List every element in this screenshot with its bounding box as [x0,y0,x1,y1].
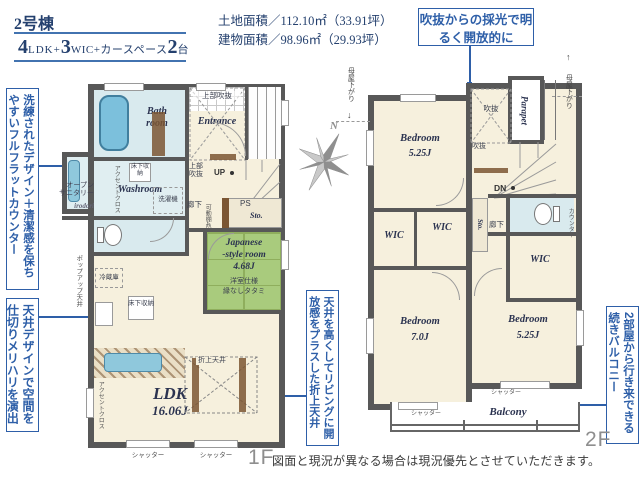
f1-popup-ceiling-label: ポップアップ天井 [74,240,82,322]
f2-wall [510,298,578,302]
f2-wall [372,266,468,270]
window [126,440,170,448]
f2-moya-dash-left [336,121,370,122]
toilet-tank-icon [553,206,560,222]
callout-continuous-balcony: 2部屋から行き来できる続きバルコニー [606,306,639,444]
f2-wall [506,198,510,302]
arrow-up-icon: ↑ [566,52,571,63]
open-sanitary-line2: サニタリー [59,190,94,197]
spec-text-ldk: LDK+ [28,44,61,56]
f1-coffered-beam [192,358,199,412]
f1-wall [88,252,188,256]
title-rule-top [14,32,186,34]
f1-accent-cloth-label-ldk: アクセントクロス [96,376,103,434]
f2-balcony-rail-inner [392,424,578,426]
window [104,83,144,91]
disclaimer-text: 図面と現況が異なる場合は現況優先とさせていただきます。 [272,452,600,469]
f1-japanese-note2: 縁なしタタミ [207,288,281,296]
f2-stair-rail [474,168,508,173]
f1-coffered-label: 折上天井 [196,357,228,365]
f2-parapet-label: Parapet [519,82,529,138]
callout-skylight: 吹抜からの採光で明るく開放的に [418,8,534,46]
spec-num-car: 2 [168,36,178,58]
window [400,94,436,102]
window [196,83,226,91]
window [366,318,374,354]
spec-line: 4LDK+3WIC+カースペース2台 [18,36,189,59]
window [366,130,374,166]
f2-dn-label: DN [494,183,506,193]
spec-text-wic: WIC+カースペース [71,44,168,56]
f1-upper-void-label-entrance: 上部吹抜 [193,91,241,100]
f2-wic-mid-label: WIC [420,222,464,234]
f2-parapet-rail [544,80,556,140]
f1-sto-label: Sto. [250,211,263,220]
f2-wic-left-label: WIC [374,230,414,242]
f2-balcony-tick [463,420,465,430]
f2-void-x [470,88,512,144]
callout-flat-counter: 洗練されたデザイン＋清潔感を保ちやすいフルフラットカウンター [6,88,39,290]
f1-accent-cloth-label-washroom: アクセントクロス [112,163,119,215]
f2-wall [414,208,417,270]
window [500,381,550,389]
f1-kitchen-sink-counter [104,353,162,372]
f2-bedroom1-size: 5.25J [380,148,460,160]
f1-floor-label: 1F [248,446,275,470]
spec-num-wic: 3 [61,36,71,58]
f1-wall [203,310,285,314]
f1-ps-door [222,198,229,228]
f2-floor-label: 2F [585,428,612,452]
building-title: 2号棟 [14,10,54,34]
building-area: 建物面積／98.96㎡（29.93坪） [218,29,387,48]
f2-shutter-label: シャッター [404,411,448,418]
window [576,310,584,346]
f2-balcony-label: Balcony [466,406,550,419]
f2-bedroom3-label: Bedroom [486,314,570,326]
window [281,240,289,270]
f1-up-label: UP [214,168,225,178]
dn-dot-icon [511,186,515,190]
f1-kitchen-storage-label: 床下収納 [128,300,154,308]
f1-upper-void-label-hall: 上部吹抜 [188,163,204,180]
f1-irodori-label: irodori [36,202,94,210]
window [398,402,438,410]
f1-ps-label: PS [240,199,251,209]
open-sanitary-line1: オープン [66,182,94,189]
f2-wall [488,232,578,236]
f1-open-sanitary-label: オープン サニタリー [36,182,94,199]
f1-washroom-storage-label: 床下収納 [129,164,151,178]
f2-moya-left-label: 母屋下がり [346,56,354,112]
f2-sto-label: Sto. [476,210,484,240]
toilet-icon [104,224,122,246]
f2-hallway-label: 廊下 [489,220,504,229]
window [194,440,238,448]
f1-japanese-note1: 洋室仕様 [207,278,281,286]
callout-coffered-ceiling: 天井を高くしてリビングに開放感をプラスした折上天井 [306,290,339,446]
f1-fridge-label: 冷蔵庫 [95,274,123,282]
f1-washing-machine-label: 洗濯機 [153,196,183,204]
arrow-down-icon: ↓ [347,110,352,121]
f2-moya-right-label: 母屋下がり [564,63,572,119]
f2-bedroom2-label: Bedroom [378,316,462,328]
f1-shutter-label: シャッター [194,452,238,460]
land-area: 土地面積／112.10㎡（33.91坪） [218,10,393,29]
f2-counter-label: カウンター [566,200,573,246]
f2-shutter-label: シャッター [484,390,528,397]
f1-bath-cabinet [152,112,165,156]
f1-stove [95,302,113,326]
f2-void-label2: 吹抜 [472,143,486,151]
callout-ceiling-design: 天井デザインで空間を仕切りメリハリを演出 [6,298,39,432]
f1-coffered-beam [239,358,246,412]
f2-wall [372,208,468,212]
window [281,100,289,126]
floorplan-page: 2号棟 4LDK+3WIC+カースペース2台 土地面積／112.10㎡（33.9… [0,0,640,480]
toilet-tank-icon [97,227,104,243]
bathtub-icon [99,95,129,151]
compass-icon [294,124,354,194]
toilet-icon [534,203,552,225]
f2-void-label: 吹抜 [476,104,506,113]
window [86,388,94,418]
f2-moya-dash-right [552,96,582,97]
f2-bedroom2-size: 7.0J [378,332,462,344]
f2-bedroom1-label: Bedroom [380,133,460,145]
f1-hallway-label: 廊下 [187,200,202,209]
f2-balcony-tick [536,420,538,430]
spec-num-ldk: 4 [18,36,28,58]
title-rule-bottom [14,60,186,62]
f1-shutter-label: シャッター [126,452,170,460]
spec-text-car: 台 [178,44,189,56]
f1-japanese-size: 4.68J [207,262,281,273]
f2-wic-right-label: WIC [520,254,560,266]
f1-stairs-upper [248,87,281,159]
f2-bedroom3-size: 5.25J [486,330,570,342]
